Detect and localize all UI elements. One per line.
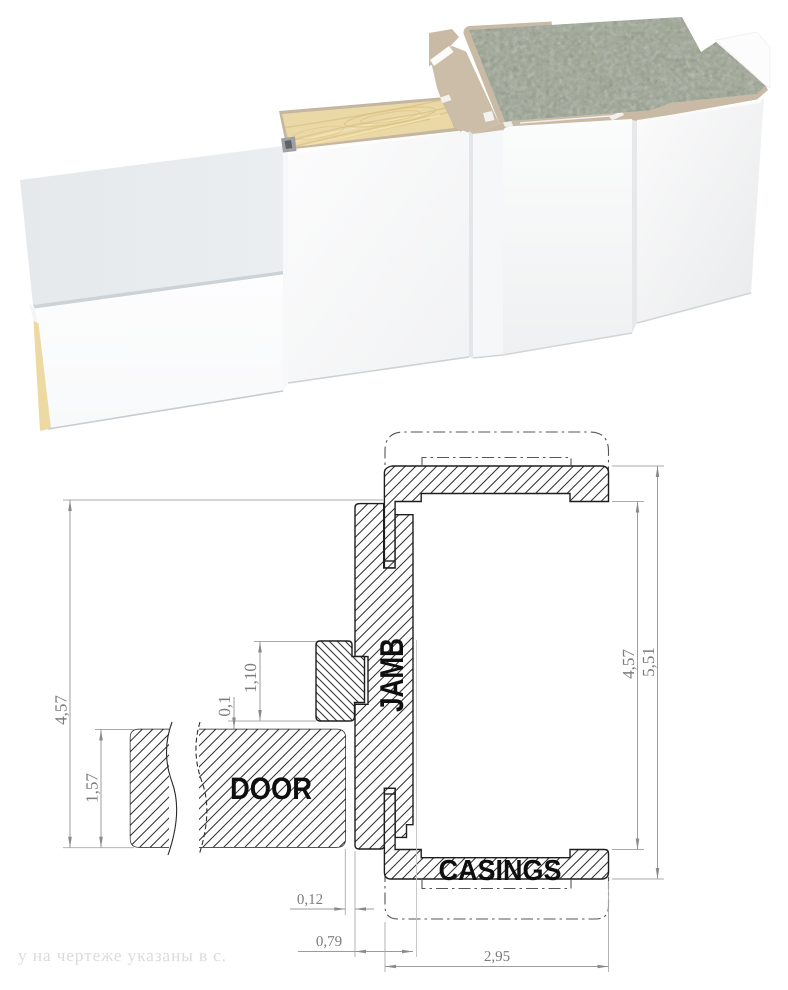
svg-text:у на чертеже указаны в с.: у на чертеже указаны в с. [18, 945, 227, 965]
svg-text:4,57: 4,57 [52, 695, 71, 725]
svg-text:0,79: 0,79 [316, 934, 342, 950]
svg-text:0,1: 0,1 [215, 695, 234, 716]
svg-text:0,12: 0,12 [297, 892, 323, 908]
svg-text:2,95: 2,95 [484, 949, 510, 965]
svg-text:DOOR: DOOR [230, 771, 312, 806]
svg-text:CASINGS: CASINGS [438, 855, 561, 887]
svg-text:5,51: 5,51 [639, 647, 658, 677]
svg-text:1,57: 1,57 [83, 773, 102, 803]
svg-text:JAMB: JAMB [373, 638, 410, 712]
svg-text:4,57: 4,57 [619, 649, 638, 679]
svg-text:1,10: 1,10 [241, 663, 260, 693]
